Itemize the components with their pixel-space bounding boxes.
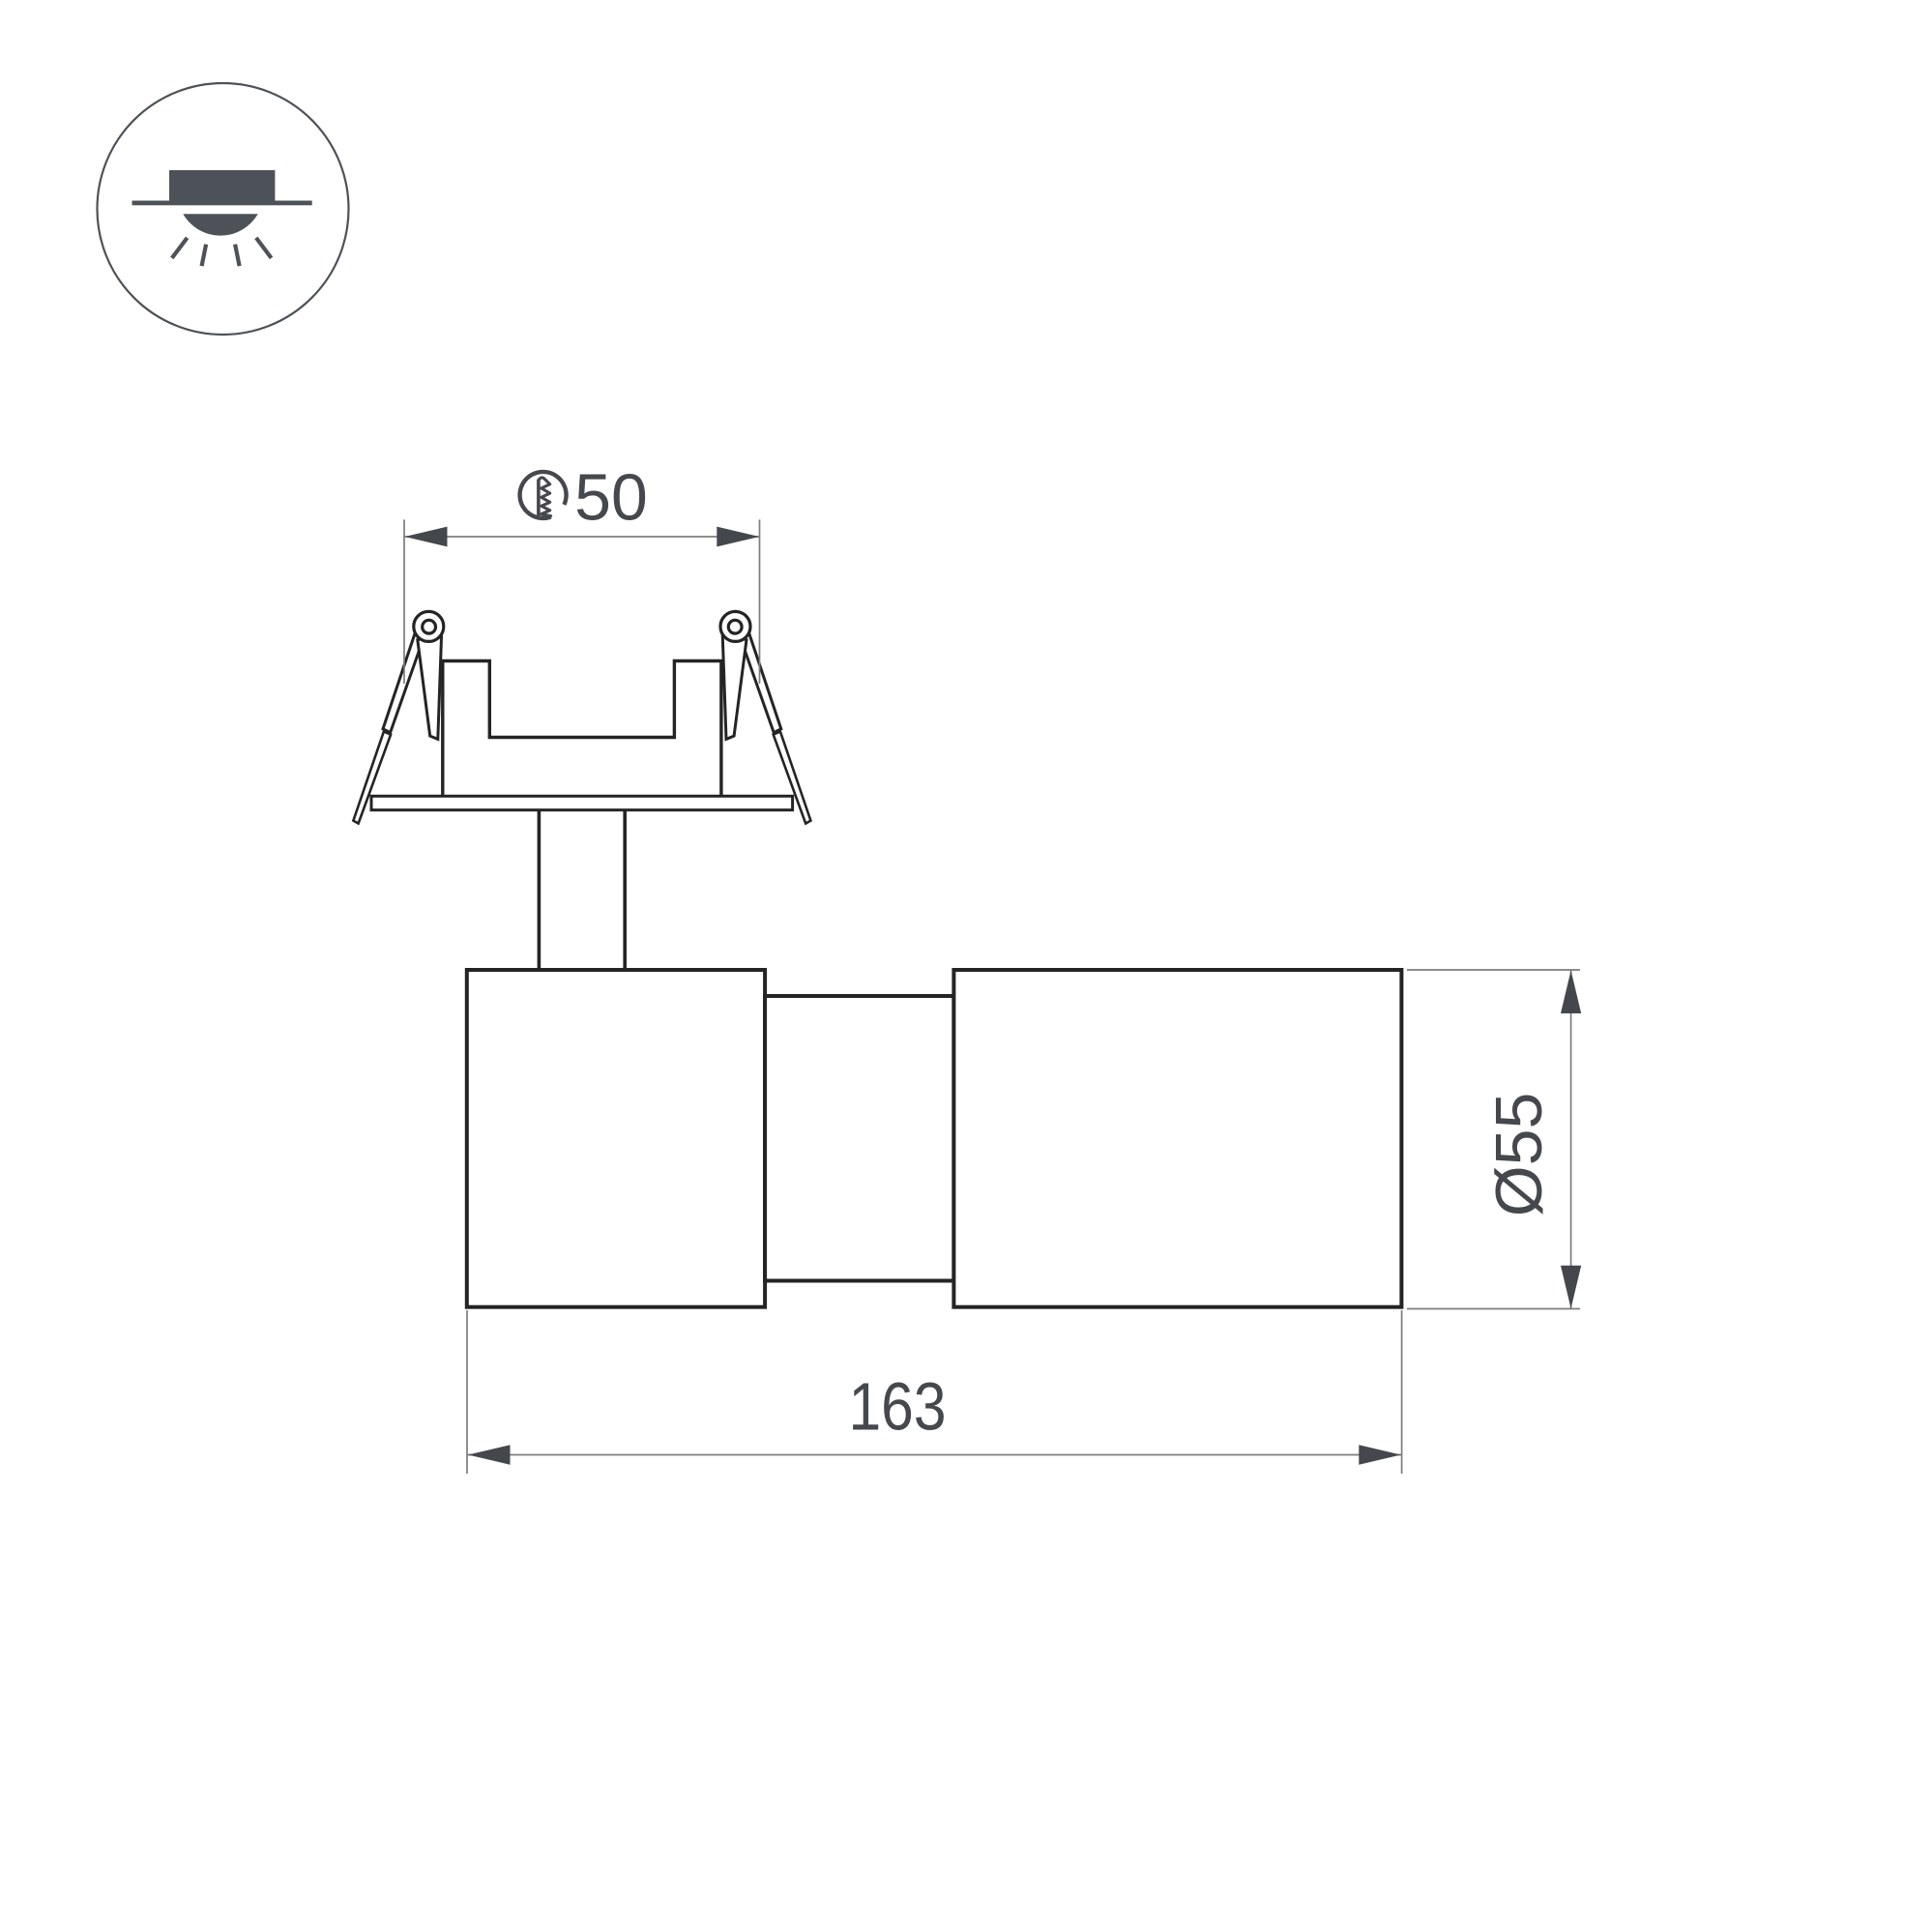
svg-text:163: 163 xyxy=(849,1369,947,1445)
svg-text:Ø55: Ø55 xyxy=(1482,1093,1556,1217)
svg-text:50: 50 xyxy=(574,461,648,535)
